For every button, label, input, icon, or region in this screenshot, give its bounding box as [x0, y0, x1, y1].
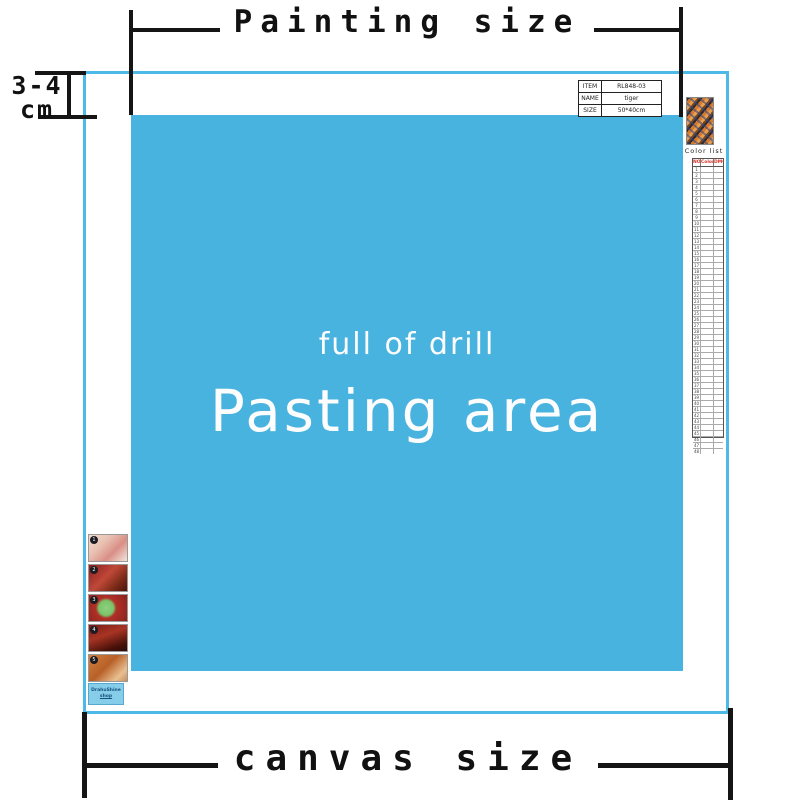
pasting-area: full of drill Pasting area: [131, 115, 683, 671]
pasting-area-subtitle: full of drill: [131, 327, 683, 362]
margin-label: 3-4 cm: [6, 74, 68, 122]
step-number-badge: 5: [90, 656, 98, 664]
step-number-badge: 2: [90, 566, 98, 574]
info-table-value: tiger: [602, 93, 661, 104]
step-photo: 2: [88, 564, 128, 592]
color-list-table: NO Color DMC 1 2 3 4 5 6 7: [692, 158, 724, 438]
item-info-table: ITEM RL848-03 NAME tiger SIZE 50*40cm: [578, 80, 662, 117]
pasting-area-title: Pasting area: [131, 377, 683, 445]
step-photo: 5: [88, 654, 128, 682]
info-table-row: NAME tiger: [579, 92, 661, 104]
step-photo: 1: [88, 534, 128, 562]
step-number-badge: 1: [90, 536, 98, 544]
color-list-row-number: 48: [693, 449, 701, 454]
canvas-size-label-wrap: canvas size: [84, 738, 732, 779]
design-preview-image: [686, 97, 714, 145]
color-list-body: 1 2 3 4 5 6 7 8: [693, 167, 723, 454]
painting-size-label: Painting size: [220, 4, 595, 40]
color-list-header-row: NO Color DMC: [693, 159, 723, 167]
info-table-label: ITEM: [579, 81, 602, 92]
info-table-label: SIZE: [579, 105, 602, 116]
info-table-label: NAME: [579, 93, 602, 104]
step-photo: 3: [88, 594, 128, 622]
color-list-header-no: NO: [693, 159, 701, 166]
step-photo: 4: [88, 624, 128, 652]
shop-name-suffix: shop: [100, 694, 112, 700]
color-list-title: Color list: [682, 147, 726, 155]
margin-label-line2: cm: [6, 98, 68, 122]
color-list-header-color: Color: [701, 159, 714, 166]
info-table-value: 50*40cm: [602, 105, 661, 116]
info-table-row: SIZE 50*40cm: [579, 104, 661, 116]
step-number-badge: 3: [90, 596, 98, 604]
step-number-badge: 4: [90, 626, 98, 634]
canvas-size-label: canvas size: [218, 738, 598, 779]
color-list-row-dmc-cell: [714, 449, 723, 454]
color-list-header-dmc: DMC: [714, 159, 723, 166]
info-table-value: RL848-03: [602, 81, 661, 92]
instruction-step-photos: 1 2 3 4 5: [88, 534, 128, 684]
shop-logo-box: DrahuShine shop: [88, 683, 124, 705]
color-list-row-color-cell: [701, 449, 714, 454]
info-table-row: ITEM RL848-03: [579, 81, 661, 92]
painting-size-label-wrap: Painting size: [131, 4, 683, 40]
color-list-row: 48: [693, 448, 723, 454]
product-diagram: { "measurements": { "painting_size_label…: [0, 0, 800, 800]
